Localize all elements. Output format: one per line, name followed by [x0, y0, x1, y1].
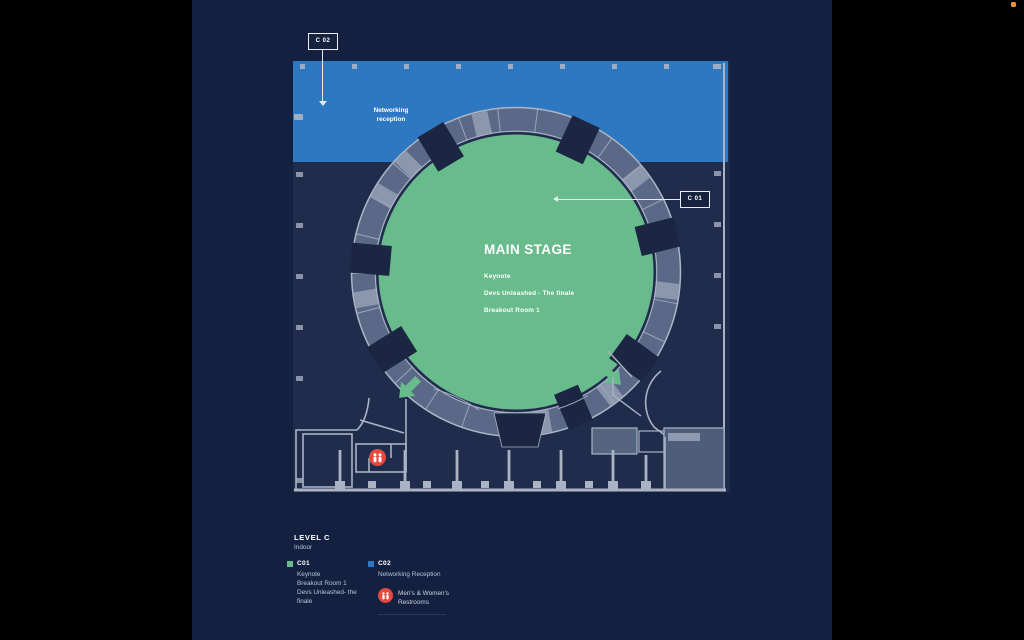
- restroom-legend-icon: [378, 588, 393, 603]
- legend-subtitle: Indoor: [294, 544, 497, 551]
- legend-item-c02: C02 Networking Reception Men's & Women's: [368, 560, 449, 615]
- legend-divider: [378, 614, 446, 615]
- stage-session-breakout-room-1: Breakout Room 1: [484, 307, 540, 314]
- legend-item-c01: C01 Keynote Breakout Room 1 Devs Unleash…: [287, 560, 368, 615]
- callout-c02[interactable]: C 02: [308, 33, 338, 50]
- stage-throat: [494, 413, 546, 447]
- main-stage-region[interactable]: [379, 135, 654, 410]
- main-stage-title: MAIN STAGE: [484, 242, 572, 257]
- callout-c02-leader: [322, 50, 323, 101]
- arrow-down-icon: [319, 101, 327, 106]
- networking-reception-label: Networking reception: [356, 107, 426, 124]
- c01-swatch: [287, 561, 293, 567]
- restroom-icon: [372, 453, 383, 463]
- c02-swatch: [368, 561, 374, 567]
- stage-session-devs-unleashed: Devs Unleashed - The finale: [484, 290, 574, 297]
- stage-session-keynote: Keynote: [484, 273, 511, 280]
- callout-c01-leader: [558, 199, 680, 200]
- floorplan-svg: [0, 0, 1024, 640]
- record-indicator-icon: [1011, 2, 1016, 7]
- legend-title: LEVEL C: [294, 533, 497, 542]
- legend: LEVEL C Indoor C01 Keynote Breakout Room…: [287, 533, 497, 615]
- screen: C 02 C 01 Networking reception MAIN STAG…: [0, 0, 1024, 640]
- legend-restrooms: Men's & Women's Restrooms: [378, 588, 449, 607]
- arrow-left-icon: [553, 196, 558, 202]
- restroom-marker[interactable]: [369, 449, 386, 466]
- callout-c01[interactable]: C 01: [680, 191, 710, 208]
